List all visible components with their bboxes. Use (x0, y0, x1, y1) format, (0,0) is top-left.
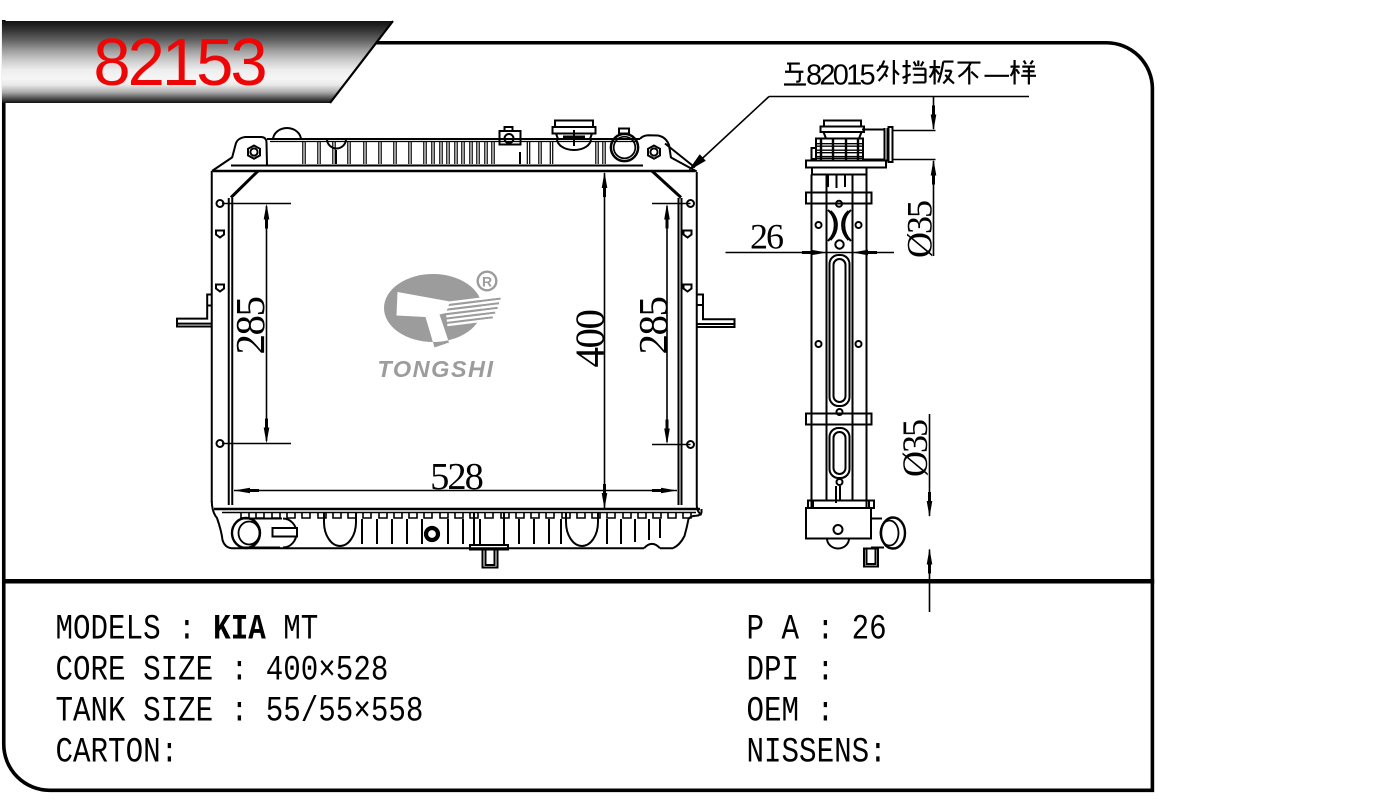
svg-text:CORE SIZE : 400×528: CORE SIZE : 400×528 (56, 650, 389, 690)
svg-text:285: 285 (630, 298, 676, 355)
svg-text:DPI :: DPI : (747, 650, 835, 690)
svg-text:NISSENS:: NISSENS: (747, 732, 887, 772)
svg-text:26: 26 (750, 217, 783, 257)
svg-text:TANK SIZE : 55/55×558: TANK SIZE : 55/55×558 (56, 691, 424, 731)
svg-text:285: 285 (227, 298, 273, 355)
svg-text:TONGSHI: TONGSHI (377, 356, 494, 382)
svg-text:82015: 82015 (806, 60, 875, 92)
svg-text:OEM :: OEM : (747, 691, 835, 731)
svg-text:P A : 26: P A : 26 (747, 609, 887, 649)
svg-text:400: 400 (567, 311, 613, 368)
svg-text:CARTON:: CARTON: (56, 732, 179, 772)
svg-text:R: R (482, 274, 492, 290)
svg-text:528: 528 (430, 456, 483, 498)
svg-text:MODELS : KIA MT: MODELS : KIA MT (56, 609, 319, 649)
svg-text:82153: 82153 (93, 25, 265, 100)
